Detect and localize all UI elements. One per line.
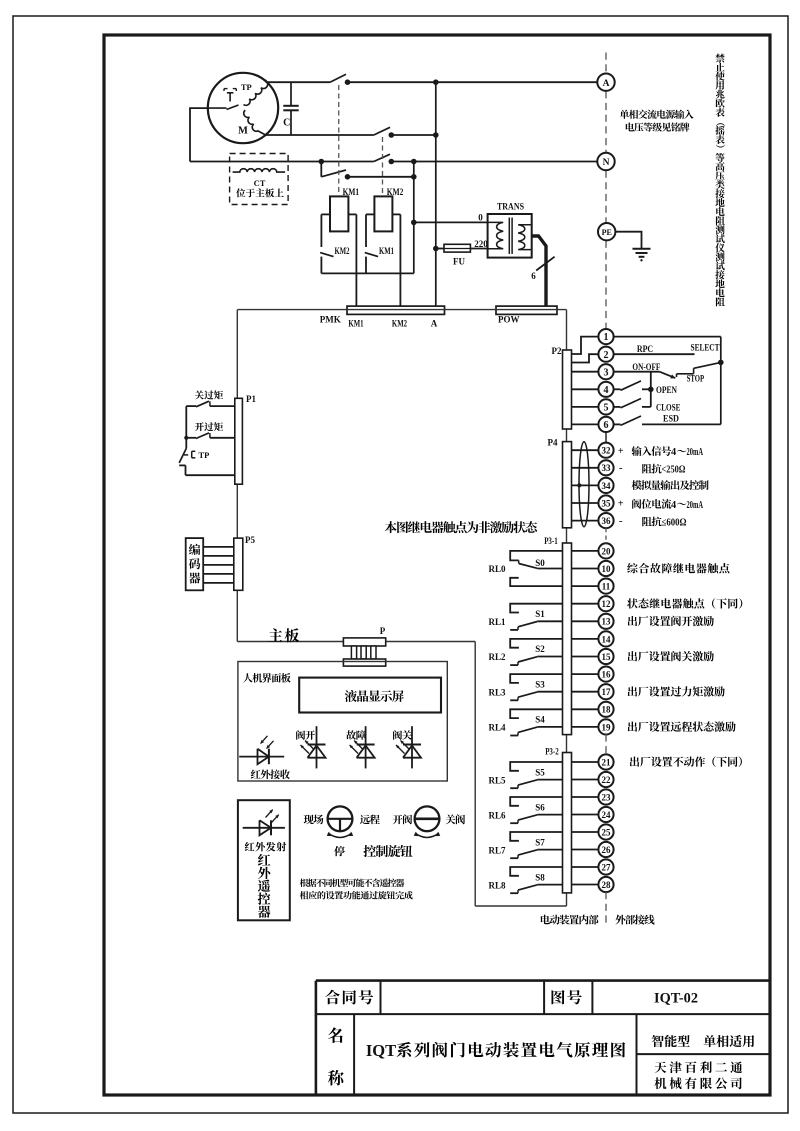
svg-text:S8: S8 [535, 872, 545, 882]
svg-text:KM2: KM2 [392, 318, 408, 328]
svg-text:28: 28 [602, 880, 612, 890]
svg-text:13: 13 [602, 617, 612, 627]
svg-text:TRANS: TRANS [497, 202, 524, 212]
svg-text:RL5: RL5 [488, 775, 506, 785]
svg-text:35: 35 [602, 498, 612, 508]
svg-text:KM1: KM1 [348, 318, 364, 328]
svg-text:OPEN: OPEN [656, 386, 677, 396]
svg-text:34: 34 [602, 481, 612, 491]
svg-text:18: 18 [602, 705, 612, 715]
svg-text:4: 4 [671, 447, 676, 458]
svg-text:SELECT: SELECT [691, 343, 721, 353]
svg-text:2: 2 [604, 350, 609, 361]
svg-text:6: 6 [604, 420, 609, 431]
svg-text:11: 11 [602, 582, 611, 592]
svg-text:3: 3 [604, 367, 609, 378]
svg-text:IQT-02: IQT-02 [654, 991, 698, 1007]
svg-text:S5: S5 [535, 767, 545, 777]
svg-text:RL3: RL3 [488, 687, 506, 697]
svg-text:-: - [619, 462, 623, 474]
svg-text:ESD: ESD [663, 415, 679, 425]
svg-text:16: 16 [602, 670, 612, 680]
svg-text:S6: S6 [535, 802, 545, 812]
svg-text:-: - [619, 515, 623, 527]
svg-text:27: 27 [602, 862, 612, 872]
svg-text:TP: TP [199, 450, 210, 460]
svg-text:25: 25 [602, 827, 612, 837]
svg-text:RPC: RPC [637, 345, 653, 355]
svg-text:S7: S7 [535, 837, 545, 847]
svg-text:P: P [380, 626, 386, 636]
svg-text:P4: P4 [548, 438, 558, 448]
svg-text:32: 32 [602, 446, 612, 456]
svg-text:A: A [431, 318, 438, 328]
svg-text:P1: P1 [246, 394, 256, 404]
svg-text:<250Ω: <250Ω [662, 465, 686, 476]
svg-text:4: 4 [604, 385, 609, 396]
svg-text:26: 26 [602, 845, 612, 855]
svg-text:S2: S2 [535, 644, 545, 654]
svg-text:20mA: 20mA [687, 447, 704, 458]
svg-text:19: 19 [602, 722, 612, 732]
svg-text:M: M [238, 126, 248, 137]
svg-text:TP: TP [241, 82, 252, 92]
svg-text:N: N [603, 158, 610, 168]
svg-text:S3: S3 [535, 679, 545, 689]
svg-text:P5: P5 [245, 535, 255, 545]
svg-text:S1: S1 [535, 609, 545, 619]
svg-text:KM2: KM2 [387, 188, 404, 198]
svg-text:20mA: 20mA [687, 500, 704, 511]
svg-text:RL6: RL6 [488, 810, 506, 820]
svg-text:S0: S0 [535, 558, 545, 568]
svg-text:RL2: RL2 [488, 652, 506, 662]
svg-text:FU: FU [453, 257, 465, 267]
svg-text:PE: PE [602, 228, 612, 237]
svg-text:RL4: RL4 [488, 723, 506, 733]
svg-text:S4: S4 [535, 715, 545, 725]
svg-text:KM1: KM1 [343, 188, 360, 198]
svg-text:33: 33 [602, 463, 612, 473]
svg-text:RL8: RL8 [488, 880, 506, 890]
svg-text:CT: CT [254, 178, 266, 188]
svg-text:STOP: STOP [687, 374, 705, 384]
svg-text:22: 22 [602, 775, 612, 785]
svg-text:17: 17 [602, 687, 612, 697]
svg-text:1: 1 [604, 332, 609, 343]
svg-text:A: A [603, 79, 610, 89]
svg-text:CLOSE: CLOSE [656, 404, 681, 414]
svg-text:C: C [283, 118, 290, 129]
svg-text:14: 14 [602, 634, 612, 644]
svg-text:20: 20 [602, 546, 612, 556]
svg-text:P3-2: P3-2 [545, 747, 559, 757]
svg-text:IQT: IQT [366, 1041, 396, 1060]
svg-text:KM1: KM1 [379, 247, 394, 257]
svg-text:+: + [618, 499, 624, 510]
svg-text:RL1: RL1 [488, 617, 506, 627]
svg-text:≤600Ω: ≤600Ω [662, 517, 687, 528]
svg-text:5: 5 [604, 403, 609, 414]
svg-text:KM2: KM2 [335, 247, 350, 257]
svg-text:23: 23 [602, 792, 612, 802]
svg-text:15: 15 [602, 652, 612, 662]
svg-text:+: + [618, 446, 624, 457]
svg-text:10: 10 [602, 564, 612, 574]
svg-text:P3-1: P3-1 [544, 536, 558, 546]
svg-text:0: 0 [478, 213, 483, 223]
svg-text:6: 6 [531, 271, 536, 281]
svg-text:PMK: PMK [320, 314, 341, 324]
svg-text:P2: P2 [552, 346, 562, 356]
svg-text:36: 36 [602, 516, 612, 526]
svg-text:220: 220 [474, 239, 488, 249]
svg-text:24: 24 [602, 810, 612, 820]
svg-text:21: 21 [602, 757, 612, 767]
svg-text:RL7: RL7 [488, 845, 506, 855]
svg-text:ON-OFF: ON-OFF [632, 363, 660, 373]
svg-text:4: 4 [671, 500, 676, 511]
svg-text:RL0: RL0 [488, 564, 506, 574]
svg-text:POW: POW [498, 315, 520, 325]
svg-text:12: 12 [602, 599, 612, 609]
